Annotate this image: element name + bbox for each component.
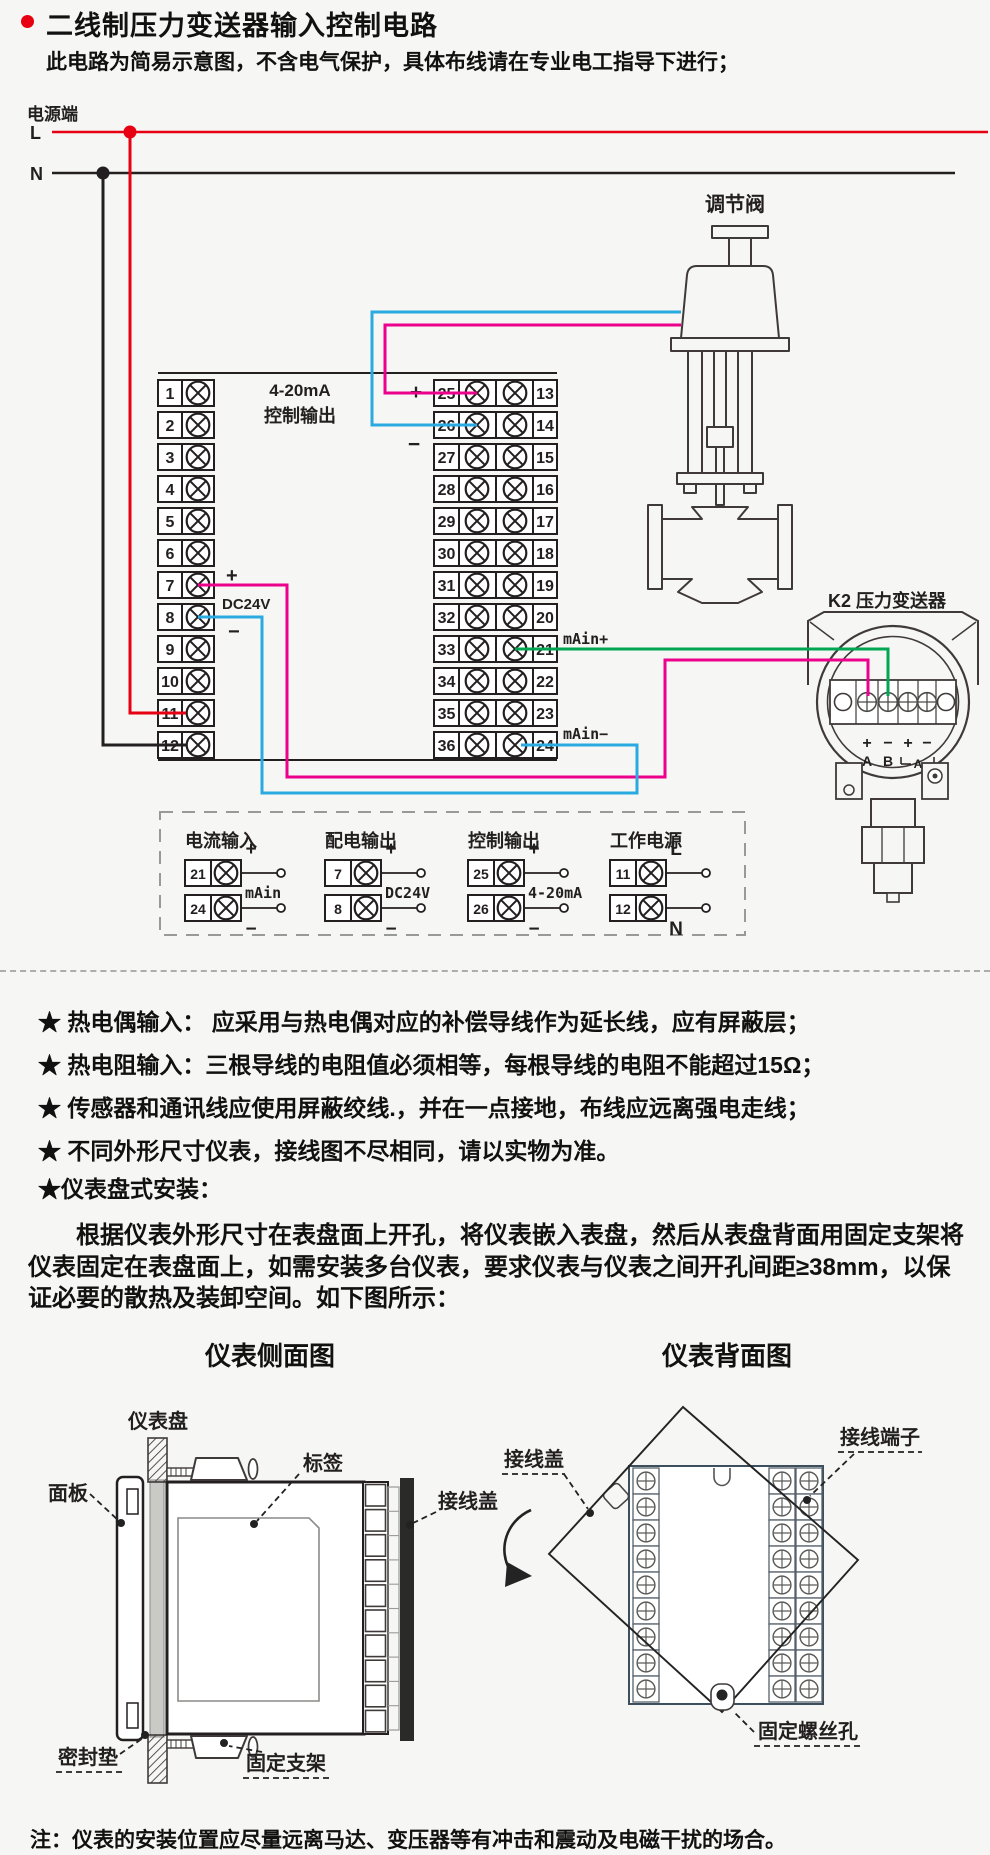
transmitter-label: K2 压力变送器 [828, 590, 947, 611]
terminal-number: 27 [438, 450, 456, 467]
screw-icon [773, 1576, 791, 1594]
legend-terminal-number: 7 [334, 866, 342, 882]
screw-icon [187, 446, 210, 469]
screw-icon [504, 702, 527, 725]
gasket-label: 密封垫 [58, 1745, 118, 1769]
control-valve-drawing [648, 226, 792, 603]
screw-icon [640, 862, 663, 885]
terminal-number: 32 [438, 610, 456, 627]
terminal-number: 31 [438, 578, 456, 595]
screw-icon [187, 734, 210, 757]
legend-terminal-number: 25 [473, 866, 489, 882]
legend-terminal-number: 12 [615, 901, 631, 917]
installation-figures: 仪表盘 面板 标签 [0, 1390, 990, 1800]
screw-icon [637, 1550, 655, 1568]
screw-icon [800, 1576, 818, 1594]
screw-icon [504, 446, 527, 469]
terminal-number: 5 [166, 514, 175, 531]
screw-icon [355, 897, 378, 920]
terminal26-minus: − [408, 433, 420, 456]
bracket-top [191, 1458, 247, 1480]
junction-dot-n [97, 167, 110, 180]
junction-dot-l [124, 126, 137, 139]
screw-icon [773, 1654, 791, 1672]
dc24v-label: DC24V [222, 596, 270, 613]
tag-label: 标签 [303, 1451, 344, 1475]
screw-icon [637, 1680, 655, 1698]
screw-icon [466, 670, 489, 693]
screw-icon [187, 414, 210, 437]
terminal-number: 19 [536, 578, 554, 595]
terminal8-minus: − [228, 621, 240, 643]
screw-icon [637, 1654, 655, 1672]
terminal-number: 29 [438, 514, 456, 531]
screw-icon [637, 1498, 655, 1516]
screw-icon [504, 606, 527, 629]
gasket-shape [150, 1480, 164, 1737]
legend-terminal-number: 8 [334, 901, 342, 917]
screw-icon [637, 1524, 655, 1542]
transmitter-hex [862, 827, 924, 863]
panel-label: 仪表盘 [127, 1409, 188, 1433]
screw-icon [187, 478, 210, 501]
instrument-body [167, 1482, 364, 1734]
terminal-number: 23 [536, 706, 554, 723]
screw-icon [800, 1628, 818, 1646]
main-minus-label: mAin− [563, 725, 608, 743]
screw-icon [637, 1472, 655, 1490]
legend-sign: − [245, 919, 256, 940]
screw-icon [187, 382, 210, 405]
screw-icon [800, 1550, 818, 1568]
pressure-transmitter-drawing: + − + − A B A [808, 612, 978, 902]
wire-26-to-valve [372, 312, 681, 425]
terminal-number: 30 [438, 546, 456, 563]
terminal-number: 34 [438, 674, 456, 691]
cover-label-back: 接线盖 [504, 1447, 564, 1471]
screw-icon [773, 1680, 791, 1698]
terminal-number: 16 [536, 482, 554, 499]
pin-a-label: A [862, 753, 872, 769]
terminal-number: 13 [536, 386, 554, 403]
screw-icon [466, 734, 489, 757]
back-view-figure: 接线盖 接线端子 固定螺丝孔 [502, 1407, 922, 1746]
left-terminal-block: 123456789101112 [158, 380, 214, 758]
screw-icon [504, 414, 527, 437]
terminal-number: 9 [166, 642, 175, 659]
screw-icon [637, 1576, 655, 1594]
output-label-line2: 控制输出 [264, 405, 336, 426]
note-shielding: ★ 传感器和通讯线应使用屏蔽绞线.，并在一点接地，布线应远离强电走线； [38, 1089, 810, 1123]
screw-icon [466, 638, 489, 661]
terminal-number: 28 [438, 482, 456, 499]
screw-icon [800, 1602, 818, 1620]
screw-icon [800, 1472, 818, 1490]
screw-icon [466, 446, 489, 469]
screw-icon [498, 862, 521, 885]
legend-sign: − [385, 919, 396, 940]
terminal-number: 10 [161, 674, 179, 691]
terminal-number: 17 [536, 514, 554, 531]
legend-sign: + [245, 839, 256, 860]
power-terminal-label: 电源端 [27, 104, 78, 124]
wiring-diagram: 电源端 L N 123456789101112 2513261427152816… [0, 95, 990, 975]
screw-icon [215, 862, 238, 885]
screw-icon [800, 1524, 818, 1542]
screw-icon [504, 478, 527, 501]
terminal-number: 18 [536, 546, 554, 563]
legend-group: 工作电源11L12N [610, 830, 710, 940]
legend-sign: N [669, 919, 683, 940]
side-view-title: 仪表侧面图 [190, 1336, 350, 1373]
screw-icon [215, 897, 238, 920]
screw-icon [466, 606, 489, 629]
line-n-label: N [30, 164, 43, 184]
transmitter-neck [871, 799, 915, 827]
pin-sign: − [922, 735, 931, 752]
legend-terminal-number: 11 [616, 866, 631, 882]
screw-icon [504, 382, 527, 405]
note-dimensions: ★ 不同外形尺寸仪表，接线图不尽相同，请以实物为准。 [38, 1132, 619, 1166]
terminal-number: 33 [438, 642, 456, 659]
screw-icon [800, 1654, 818, 1672]
faceplate-shape [117, 1477, 143, 1740]
terminal-number: 8 [166, 610, 175, 627]
screw-icon [355, 862, 378, 885]
pin-sign: + [903, 735, 912, 752]
center-terminal-block: 2513261427152816291730183119322033213422… [434, 380, 557, 758]
screw-icon [187, 638, 210, 661]
terminal-number: 2 [166, 418, 175, 435]
transmitter-tab-left [836, 763, 862, 799]
pin-b-label: B [883, 753, 893, 769]
screw-icon [466, 542, 489, 565]
screw-icon [187, 702, 210, 725]
page-title: 二线制压力变送器输入控制电路 [46, 4, 438, 43]
title-bullet-icon [21, 15, 34, 28]
terminal-number: 22 [536, 674, 554, 691]
page: 二线制压力变送器输入控制电路 此电路为简易示意图，不含电气保护，具体布线请在专业… [0, 0, 990, 1855]
legend-terminal-number: 21 [190, 866, 206, 882]
pin-sign: + [862, 735, 871, 752]
terminal-number: 3 [166, 450, 175, 467]
panel-wall-bottom [148, 1735, 167, 1783]
screw-icon [773, 1602, 791, 1620]
terminal-number: 7 [166, 578, 175, 595]
screw-icon [187, 542, 210, 565]
page-subtitle: 此电路为简易示意图，不含电气保护，具体布线请在专业电工指导下进行； [46, 46, 739, 76]
legend-sign: − [528, 919, 539, 940]
terminal-number: 6 [166, 546, 175, 563]
screw-icon [800, 1680, 818, 1698]
screw-icon [504, 670, 527, 693]
note-panel-mount: ★仪表盘式安装： [38, 1170, 222, 1204]
legend-sign: + [385, 839, 396, 860]
screw-icon [637, 1602, 655, 1620]
terminal-number: 14 [536, 418, 554, 435]
screw-icon [773, 1550, 791, 1568]
screw-icon [466, 574, 489, 597]
cover-bar [400, 1478, 414, 1741]
terminal-number: 15 [536, 450, 554, 467]
valve-label: 调节阀 [705, 192, 765, 216]
terminal-number: 36 [438, 738, 456, 755]
legend-group: 配电输出7+8−DC24V [325, 830, 430, 940]
legend-sign: L [670, 839, 682, 860]
bracket-label: 固定支架 [246, 1751, 326, 1775]
faceplate-label: 面板 [48, 1481, 89, 1505]
legend-groups: 电流输入21+24−mAin配电输出7+8−DC24V控制输出25+26−4-2… [185, 830, 710, 940]
legend-terminal-number: 24 [190, 901, 206, 917]
section-divider [0, 970, 990, 972]
output-label-line1: 4-20mA [269, 381, 330, 400]
screw-icon [640, 897, 663, 920]
line-l-label: L [30, 123, 41, 143]
screw-icon [773, 1524, 791, 1542]
screw-icon [504, 510, 527, 533]
screw-icon [504, 542, 527, 565]
terminal-number: 20 [536, 610, 554, 627]
legend-terminal-number: 26 [473, 901, 489, 917]
pin-sign: − [883, 735, 892, 752]
screw-icon [466, 510, 489, 533]
terminal-number: 4 [166, 482, 175, 499]
legend-group: 控制输出25+26−4-20mA [468, 830, 582, 940]
screw-hole-label: 固定螺丝孔 [758, 1719, 858, 1743]
panel-wall-top [148, 1438, 167, 1482]
terminal-strip-side [363, 1482, 388, 1734]
screw-icon [498, 897, 521, 920]
terminal-number: 35 [438, 706, 456, 723]
screw-icon [773, 1498, 791, 1516]
screw-icon [504, 574, 527, 597]
side-view-figure: 仪表盘 面板 标签 [48, 1409, 498, 1783]
terminal-label-back: 接线端子 [840, 1425, 920, 1449]
legend-signal-label: 4-20mA [528, 884, 582, 902]
note-thermocouple: ★ 热电偶输入： 应采用与热电偶对应的补偿导线作为延长线，应有屏蔽层； [38, 1003, 810, 1037]
legend-group: 电流输入21+24−mAin [185, 830, 285, 940]
legend-signal-label: mAin [245, 884, 281, 902]
footer-note: 注：仪表的安装位置应尽量远离马达、变压器等有冲击和震动及电磁干扰的场合。 [30, 1824, 786, 1854]
terminal-number: 1 [166, 386, 175, 403]
note-rtd: ★ 热电阻输入：三根导线的电阻值必须相等，每根导线的电阻不能超过15Ω； [38, 1046, 824, 1080]
legend-signal-label: DC24V [385, 884, 430, 902]
screw-icon [466, 478, 489, 501]
rotate-arrow [504, 1510, 531, 1572]
cover-label-side: 接线盖 [438, 1489, 498, 1513]
screw-icon [466, 702, 489, 725]
legend-sign: + [528, 839, 539, 860]
main-plus-label: mAin+ [563, 630, 608, 648]
install-paragraph: 根据仪表外形尺寸在表盘面上开孔，将仪表嵌入表盘，然后从表盘背面用固定支架将仪表固… [28, 1220, 964, 1315]
back-view-title: 仪表背面图 [645, 1336, 809, 1373]
screw-icon [187, 510, 210, 533]
transmitter-port [874, 863, 912, 893]
screw-icon [187, 670, 210, 693]
